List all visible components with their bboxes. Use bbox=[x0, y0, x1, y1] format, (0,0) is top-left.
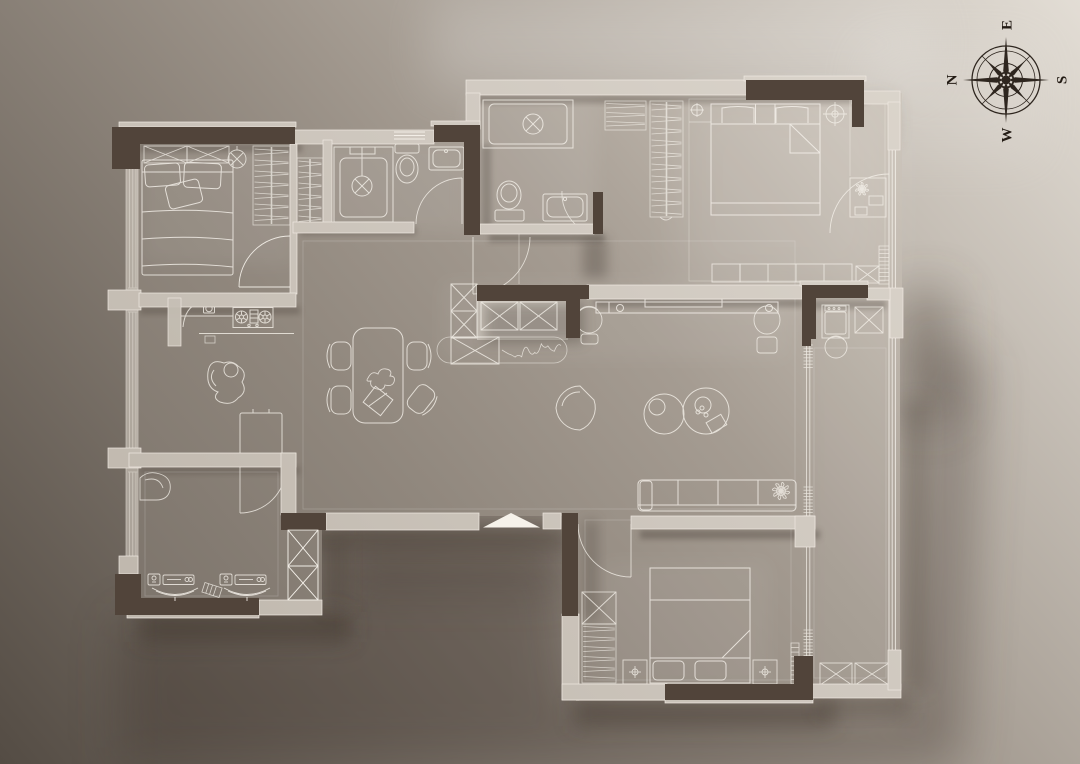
svg-text:W: W bbox=[1000, 128, 1016, 143]
svg-text:S: S bbox=[1055, 76, 1071, 84]
svg-text:E: E bbox=[1000, 20, 1016, 30]
svg-text:N: N bbox=[945, 74, 961, 85]
